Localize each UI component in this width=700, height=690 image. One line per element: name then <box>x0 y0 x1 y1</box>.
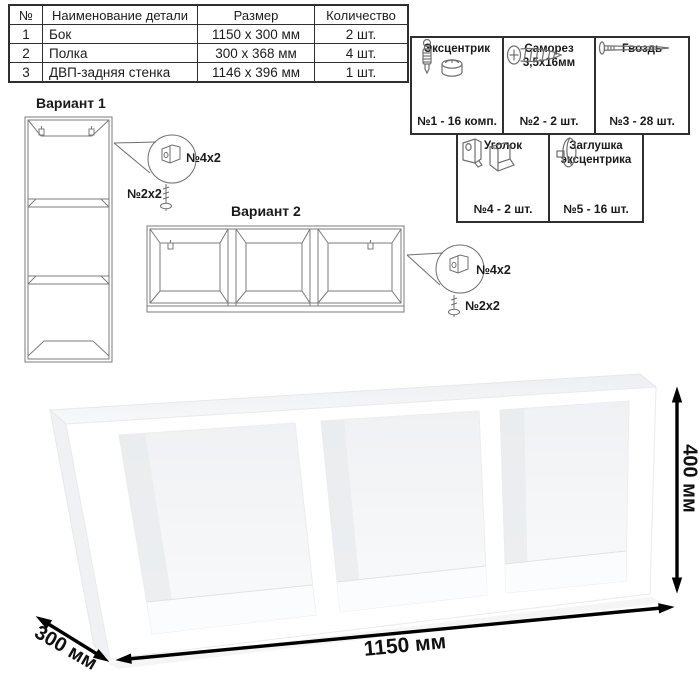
part-number: 3 <box>9 63 43 83</box>
parts-table: № Наименование детали Размер Количество … <box>8 4 409 83</box>
variant2-drawing <box>147 226 404 312</box>
part-size: 300 x 368 мм <box>198 44 315 63</box>
table-row: 3 ДВП-задняя стенка 1146 x 396 мм 1 шт. <box>9 63 408 83</box>
col-header-name: Наименование детали <box>43 5 198 25</box>
variant1-screw-label: №2х2 <box>127 187 162 201</box>
hardware-item-count: №4 - 2 шт. <box>474 202 533 221</box>
hardware-item-count: №3 - 28 шт. <box>609 114 675 133</box>
variant1-drawing <box>25 117 112 362</box>
shelf-3d-render <box>50 374 662 669</box>
variant1-bracket-label: №4х2 <box>186 151 221 165</box>
col-header-quantity: Количество <box>315 5 409 25</box>
hardware-item-nail: Гвоздь №3 - 28 шт. <box>594 36 690 135</box>
part-name: ДВП-задняя стенка <box>43 63 198 83</box>
variant2-screw-label: №2х2 <box>465 299 500 313</box>
part-quantity: 2 шт. <box>315 25 409 44</box>
screw-icon <box>161 184 172 211</box>
shelf-bracket-icon <box>39 126 94 135</box>
assembly-instruction-sheet: № Наименование детали Размер Количество … <box>0 0 700 690</box>
corner-bracket-icon <box>450 255 468 273</box>
variant1-title: Вариант 1 <box>36 95 106 111</box>
variant2-bracket-label: №4х2 <box>476 263 511 277</box>
variant2-title: Вариант 2 <box>231 203 301 219</box>
parts-table-header-row: № Наименование детали Размер Количество <box>9 5 408 25</box>
screw-icon <box>449 295 460 317</box>
col-header-size: Размер <box>198 5 315 25</box>
part-quantity: 1 шт. <box>315 63 409 83</box>
part-size: 1146 x 396 мм <box>198 63 315 83</box>
col-header-number: № <box>9 5 43 25</box>
dimension-height-label: 400 мм <box>678 433 700 525</box>
hardware-item-cam-cap: Заглушка эксцентрика №5 - 16 шт. <box>548 133 644 223</box>
part-name: Бок <box>43 25 198 44</box>
hardware-item-bracket: Уголок №4 - 2 шт. <box>456 133 550 223</box>
corner-bracket-icon <box>162 145 180 163</box>
shelf-bracket-icon <box>168 240 373 249</box>
hardware-item-screw: Саморез 3,5х16мм №2 - 2 шт. <box>502 36 596 135</box>
part-number: 1 <box>9 25 43 44</box>
table-row: 2 Полка 300 x 368 мм 4 шт. <box>9 44 408 63</box>
hardware-item-count: №1 - 16 комп. <box>417 114 497 133</box>
hardware-item-count: №5 - 16 шт. <box>563 202 629 221</box>
hardware-item-eccentric: Эксцентрик №1 - 16 комп. <box>410 36 504 135</box>
hardware-item-count: №2 - 2 шт. <box>520 114 579 133</box>
part-size: 1150 x 300 мм <box>198 25 315 44</box>
table-row: 1 Бок 1150 x 300 мм 2 шт. <box>9 25 408 44</box>
part-name: Полка <box>43 44 198 63</box>
part-quantity: 4 шт. <box>315 44 409 63</box>
part-number: 2 <box>9 44 43 63</box>
